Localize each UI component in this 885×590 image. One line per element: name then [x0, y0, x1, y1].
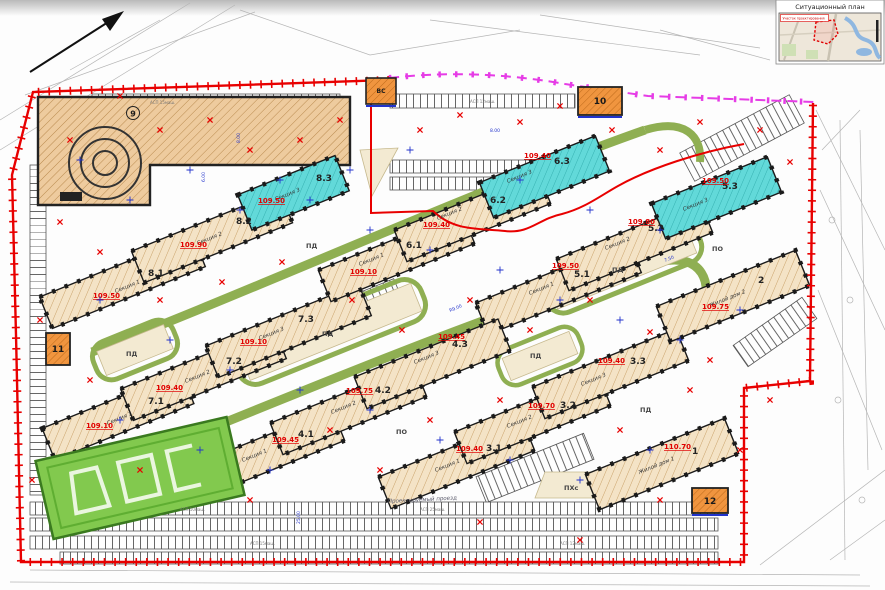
svg-text:ПО: ПО: [712, 245, 723, 253]
utility-box-10: 10: [578, 87, 622, 117]
svg-text:109.90: 109.90: [180, 241, 207, 249]
svg-text:109.40: 109.40: [456, 445, 483, 453]
svg-text:109.40: 109.40: [423, 221, 450, 229]
utility-box-11: 11: [46, 333, 70, 365]
svg-text:5.1: 5.1: [574, 270, 590, 280]
svg-text:7.1: 7.1: [148, 397, 164, 407]
svg-text:109.10: 109.10: [86, 422, 113, 430]
utility-box-vs: ВС: [366, 78, 396, 106]
utility-box-12: 12: [692, 488, 728, 515]
svg-text:109.45: 109.45: [438, 333, 465, 341]
svg-text:ПД: ПД: [306, 242, 317, 250]
svg-text:8.00: 8.00: [490, 128, 500, 134]
svg-text:1: 1: [692, 447, 698, 457]
svg-text:25.00: 25.00: [296, 511, 302, 524]
svg-text:109.40: 109.40: [156, 384, 183, 392]
svg-text:ПД: ПД: [126, 350, 137, 358]
inset-plot-label: Участок проектирования: [783, 17, 825, 21]
svg-text:8.3: 8.3: [316, 174, 332, 184]
svg-text:АСП 10маш.: АСП 10маш.: [180, 507, 205, 512]
utility-box-11-label: 11: [52, 345, 65, 355]
svg-text:7.3: 7.3: [298, 315, 314, 325]
svg-text:4.1: 4.1: [298, 430, 314, 440]
svg-text:109.50: 109.50: [93, 292, 120, 300]
svg-text:6.3: 6.3: [554, 157, 570, 167]
svg-text:ПД: ПД: [640, 406, 651, 414]
situational-plan-inset: Ситуационный план Участок проектирования: [776, 0, 884, 64]
utility-box-12-label: 12: [704, 497, 717, 507]
svg-text:ПО: ПО: [396, 428, 407, 436]
svg-text:3.2: 3.2: [560, 401, 576, 411]
svg-text:7.2: 7.2: [226, 357, 242, 367]
svg-text:ПД: ПД: [530, 352, 541, 360]
svg-text:109.75: 109.75: [702, 303, 729, 311]
svg-text:109.50: 109.50: [552, 262, 579, 270]
svg-text:109.40: 109.40: [598, 357, 625, 365]
svg-text:2: 2: [758, 276, 764, 286]
utility-box-10-label: 10: [594, 97, 607, 107]
svg-text:ПХс: ПХс: [564, 484, 578, 492]
svg-text:8.00: 8.00: [236, 133, 242, 143]
svg-text:8.2: 8.2: [236, 217, 252, 227]
svg-text:3.3: 3.3: [630, 357, 646, 367]
site-plan-page: ВС 10 11 12 9 8.1Секция 1109.50 8.2Секци…: [0, 0, 885, 590]
svg-text:АСП 15маш.: АСП 15маш.: [250, 541, 275, 546]
svg-text:4.2: 4.2: [375, 386, 391, 396]
svg-text:АСП 15маш.: АСП 15маш.: [150, 100, 175, 105]
svg-text:109.50: 109.50: [702, 177, 729, 185]
svg-text:109.45: 109.45: [272, 436, 299, 444]
inset-scale-bar: [876, 20, 879, 42]
svg-text:6.00: 6.00: [201, 172, 207, 182]
site-plan-canvas: ВС 10 11 12 9 8.1Секция 1109.50 8.2Секци…: [0, 0, 885, 590]
svg-text:АСП 25маш.: АСП 25маш.: [420, 507, 445, 512]
svg-text:8.1: 8.1: [148, 269, 164, 279]
svg-text:109.50: 109.50: [258, 197, 285, 205]
svg-text:109.75: 109.75: [346, 387, 373, 395]
svg-text:109.70: 109.70: [528, 402, 555, 410]
svg-text:ПД: ПД: [322, 330, 333, 338]
svg-text:109.40: 109.40: [524, 152, 551, 160]
svg-text:3.1: 3.1: [486, 444, 502, 454]
svg-text:110.70: 110.70: [664, 443, 691, 451]
svg-text:ПД: ПД: [612, 266, 623, 274]
svg-text:109.10: 109.10: [350, 268, 377, 276]
svg-text:109.10: 109.10: [240, 338, 267, 346]
svg-text:4.3: 4.3: [452, 340, 468, 350]
utility-box-vs-label: ВС: [377, 88, 387, 95]
svg-text:6.1: 6.1: [406, 241, 422, 251]
inset-title: Ситуационный план: [795, 3, 865, 11]
svg-text:АСП 12маш.: АСП 12маш.: [470, 99, 495, 104]
svg-text:9: 9: [130, 110, 136, 119]
scan-edge: [0, 0, 885, 16]
svg-text:6.2: 6.2: [490, 196, 506, 206]
svg-text:109.80: 109.80: [628, 218, 655, 226]
